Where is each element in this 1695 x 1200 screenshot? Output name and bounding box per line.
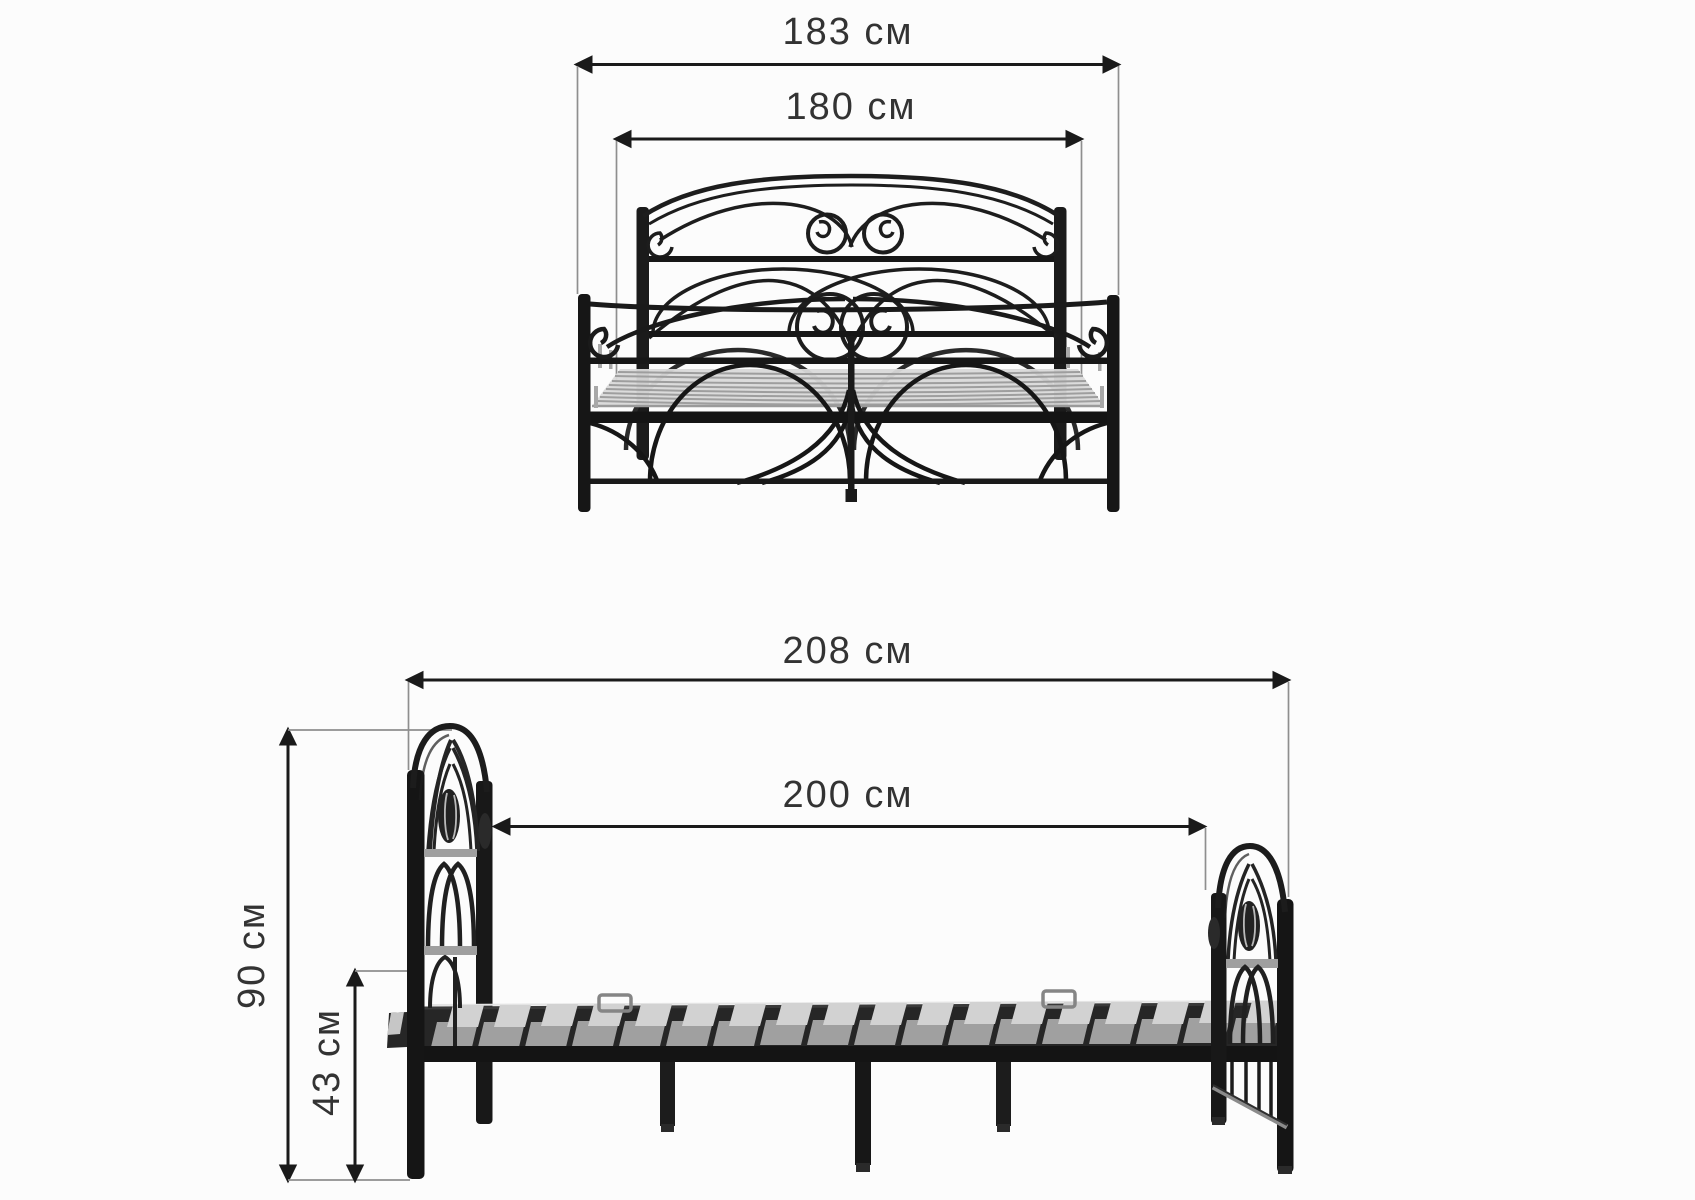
svg-text:180 см: 180 см xyxy=(785,86,916,128)
svg-text:183 см: 183 см xyxy=(782,11,913,53)
svg-text:90 см: 90 см xyxy=(231,901,273,1009)
svg-text:208 см: 208 см xyxy=(782,630,913,672)
svg-text:200 см: 200 см xyxy=(782,774,913,816)
svg-text:43 см: 43 см xyxy=(306,1008,348,1116)
